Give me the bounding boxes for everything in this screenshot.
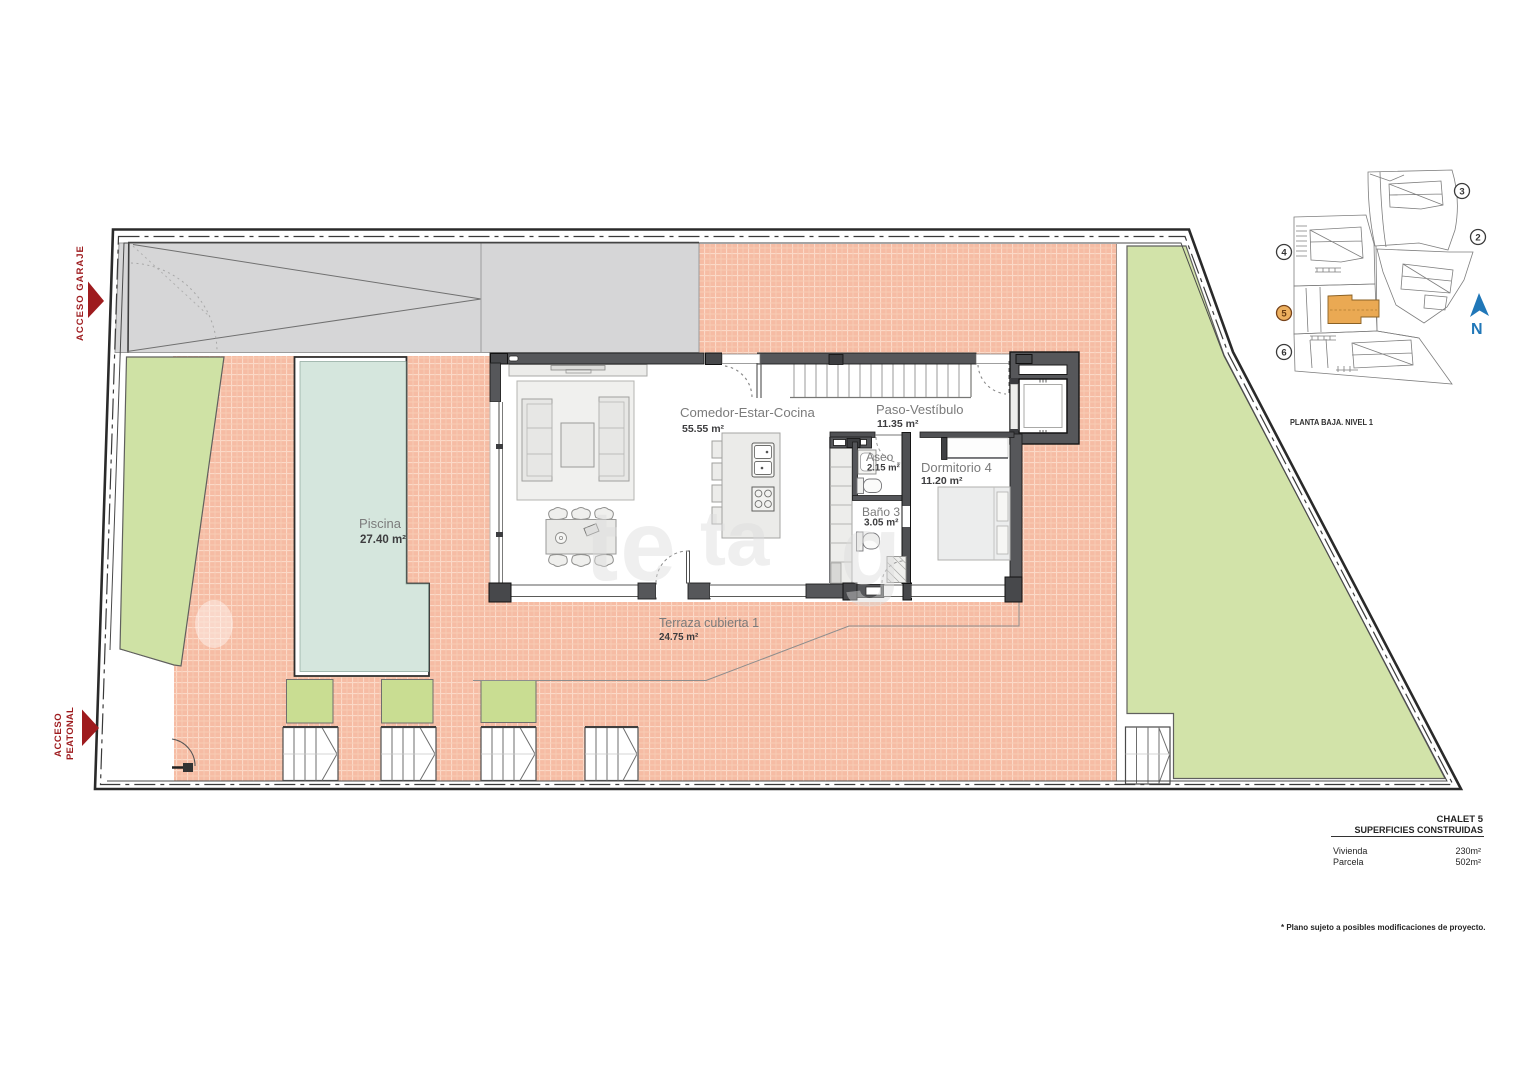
svg-text:Parcela: Parcela <box>1333 857 1364 867</box>
svg-text:SUPERFICIES CONSTRUIDAS: SUPERFICIES CONSTRUIDAS <box>1354 825 1483 835</box>
svg-text:502m²: 502m² <box>1455 857 1481 867</box>
svg-text:27.40 m²: 27.40 m² <box>360 534 406 546</box>
svg-text:* Plano sujeto a posibles modi: * Plano sujeto a posibles modificaciones… <box>1281 923 1486 932</box>
svg-text:Comedor-Estar-Cocina: Comedor-Estar-Cocina <box>680 405 816 420</box>
svg-text:11.35 m²: 11.35 m² <box>877 418 919 430</box>
svg-text:Terraza cubierta 1: Terraza cubierta 1 <box>659 616 759 630</box>
svg-text:ta: ta <box>700 494 770 582</box>
svg-text:24.75 m²: 24.75 m² <box>659 632 699 643</box>
svg-text:Dormitorio 4: Dormitorio 4 <box>921 460 992 475</box>
svg-text:5: 5 <box>1281 309 1287 320</box>
svg-text:PLANTA BAJA. NIVEL 1: PLANTA BAJA. NIVEL 1 <box>1290 417 1373 427</box>
svg-text:PEATONAL: PEATONAL <box>65 707 76 760</box>
svg-text:6: 6 <box>1281 348 1286 359</box>
svg-text:2.15 m²: 2.15 m² <box>867 463 900 474</box>
svg-text:Piscina: Piscina <box>359 516 402 531</box>
svg-text:g: g <box>840 495 901 607</box>
svg-text:2: 2 <box>1475 233 1480 244</box>
svg-text:230m²: 230m² <box>1455 846 1481 856</box>
svg-text:te: te <box>585 490 678 602</box>
svg-text:11.20 m²: 11.20 m² <box>921 475 963 487</box>
svg-text:CHALET 5: CHALET 5 <box>1437 814 1484 825</box>
svg-text:4: 4 <box>1281 248 1287 259</box>
svg-text:N: N <box>1471 321 1483 338</box>
svg-text:3: 3 <box>1459 187 1464 198</box>
svg-text:55.55 m²: 55.55 m² <box>682 423 725 435</box>
svg-text:ACCESO GARAJE: ACCESO GARAJE <box>75 245 86 341</box>
svg-text:ACCESO: ACCESO <box>53 713 64 757</box>
svg-text:Paso-Vestíbulo: Paso-Vestíbulo <box>876 402 963 417</box>
svg-text:Vivienda: Vivienda <box>1333 846 1367 856</box>
